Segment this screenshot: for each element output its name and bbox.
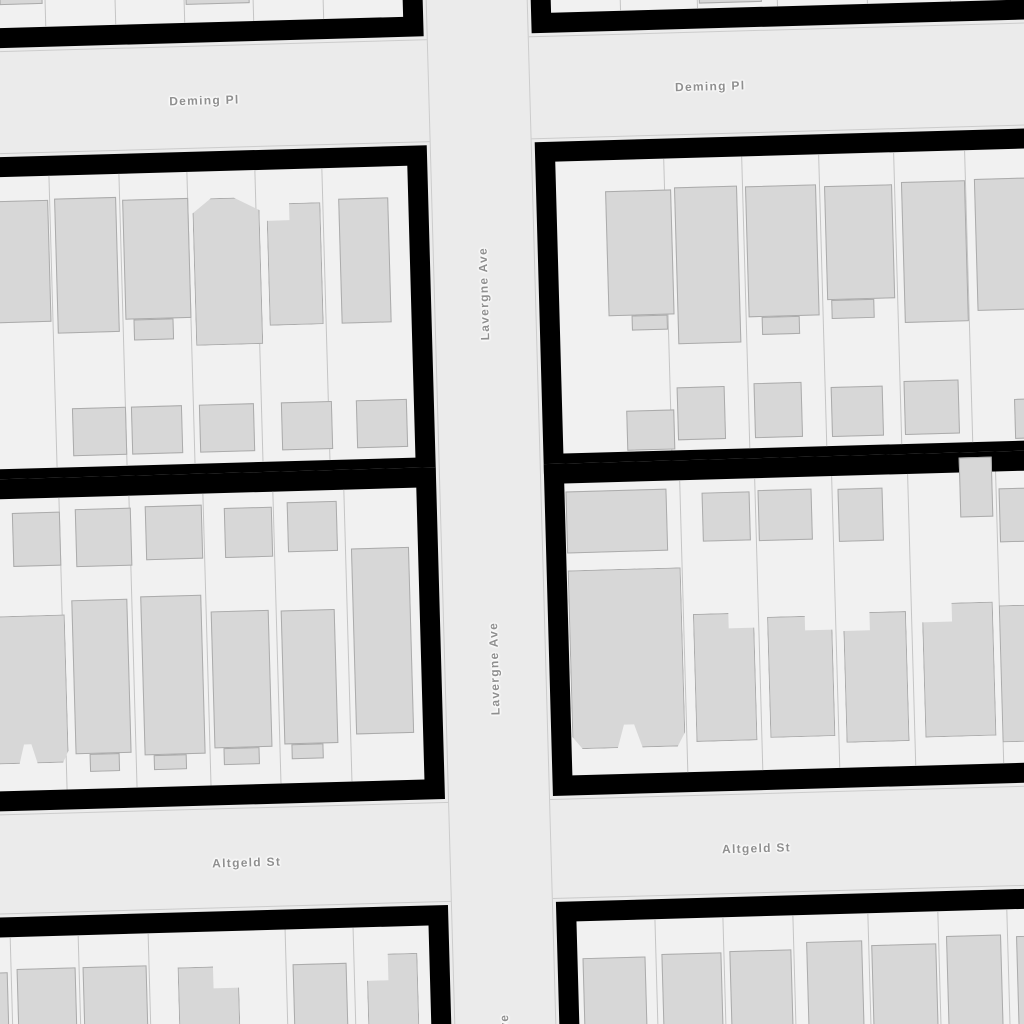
building-footprint [762,316,800,335]
building-footprint [83,965,152,1024]
building-footprint [154,754,187,770]
building-footprint [338,197,391,323]
building-footprint [837,488,883,542]
building-footprint [131,405,183,454]
building-footprint [224,507,273,558]
street-label-altgeld-st-east: Altgeld St [722,840,791,856]
building-footprint [122,198,191,320]
building-footprint [729,949,796,1024]
building-footprint [568,567,686,749]
building-footprint [293,963,352,1024]
building-footprint [565,489,668,554]
map-canvas[interactable]: Deming Pl Deming Pl Lavergne Ave Lavergn… [0,0,1024,1024]
building-footprint [281,609,339,744]
building-footprint [974,177,1024,311]
building-footprint [0,615,69,765]
building-footprint [223,747,259,765]
building-footprint [72,407,127,456]
building-footprint [693,612,758,742]
building-footprint [266,202,323,325]
building-footprint [287,501,338,552]
building-footprint [1014,398,1024,439]
street-label-deming-pl-west: Deming Pl [169,92,240,108]
street-label-lavergne-ave-north: Lavergne Ave [476,247,493,341]
building-footprint [959,457,994,518]
building-footprint [54,197,120,334]
building-footprint [903,379,959,435]
building-footprint [677,386,726,440]
building-footprint [0,200,52,324]
building-footprint [999,487,1024,542]
building-footprint [211,610,273,749]
building-footprint [192,197,263,346]
building-footprint [901,180,969,323]
building-footprint [753,382,803,438]
building-footprint [140,595,205,756]
building-footprint [75,508,133,568]
building-footprint [582,956,650,1024]
building-footprint [632,315,668,331]
building-footprint [757,489,812,541]
building-footprint [831,386,884,437]
building-footprint [1016,935,1024,1024]
building-footprint [71,599,131,755]
building-footprint [133,318,174,340]
building-footprint [281,401,333,450]
building-footprint [702,491,751,541]
building-footprint [806,940,867,1024]
building-footprint [199,403,255,453]
building-footprint [12,512,61,567]
building-footprint [605,189,674,316]
building-footprint [871,943,941,1024]
building-footprint [351,547,414,735]
building-footprint [356,399,408,448]
building-footprint [831,299,875,319]
building-footprint [767,615,835,738]
building-footprint [626,409,675,450]
building-footprint [17,967,81,1024]
building-footprint [90,753,120,772]
map-rotation-layer: Deming Pl Deming Pl Lavergne Ave Lavergn… [0,0,1024,1024]
building-footprint [745,184,820,317]
street-label-altgeld-st-west: Altgeld St [212,855,281,871]
building-footprint [291,743,323,759]
building-footprint [946,935,1006,1024]
building-footprint [145,505,203,561]
street-label-deming-pl-east: Deming Pl [675,78,746,94]
building-footprint [674,186,741,345]
building-footprint [843,611,910,743]
building-footprint [999,604,1024,743]
building-footprint [824,184,895,300]
street-label-lavergne-ave-mid: Lavergne Ave [486,622,503,716]
building-footprint [661,952,726,1024]
